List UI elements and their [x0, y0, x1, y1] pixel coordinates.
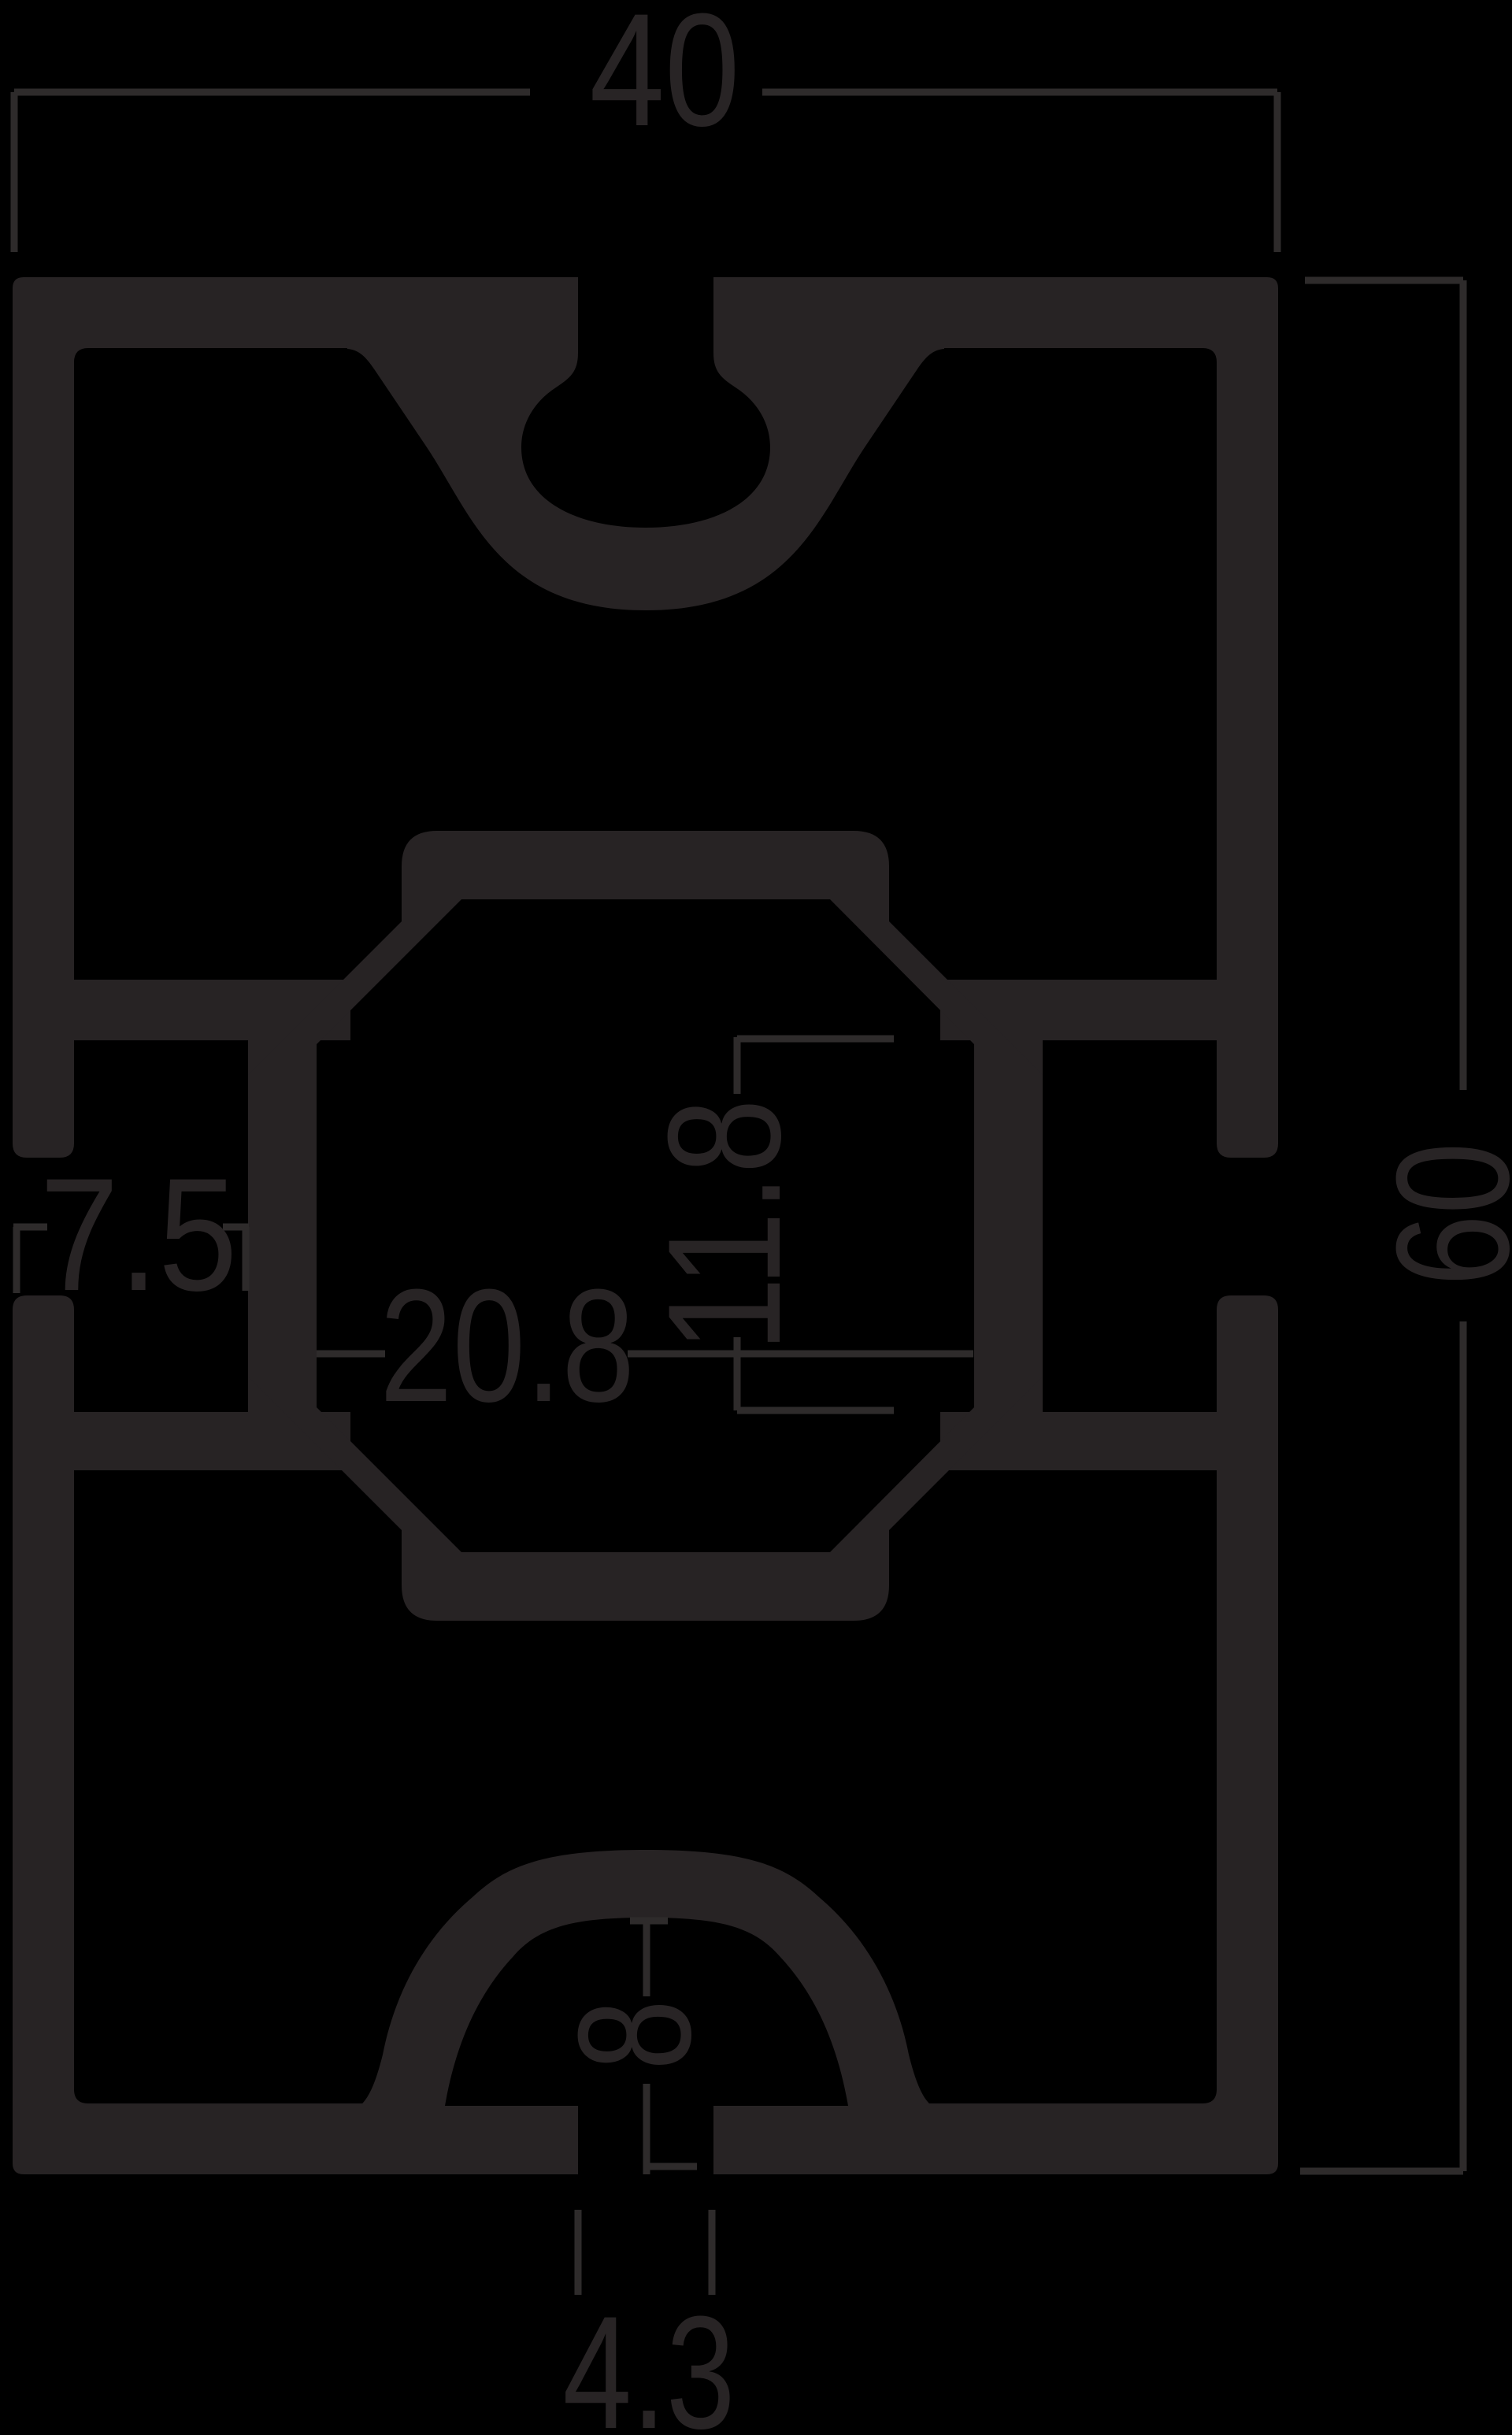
svg-text:7.5: 7.5 — [40, 1145, 238, 1325]
svg-text:4.3: 4.3 — [563, 2283, 736, 2435]
svg-text:20.8: 20.8 — [380, 1256, 635, 1436]
svg-text:8: 8 — [545, 2000, 724, 2070]
svg-text:60: 60 — [1363, 1143, 1512, 1287]
svg-text:11.8: 11.8 — [635, 1099, 814, 1352]
svg-text:40: 40 — [590, 0, 740, 160]
